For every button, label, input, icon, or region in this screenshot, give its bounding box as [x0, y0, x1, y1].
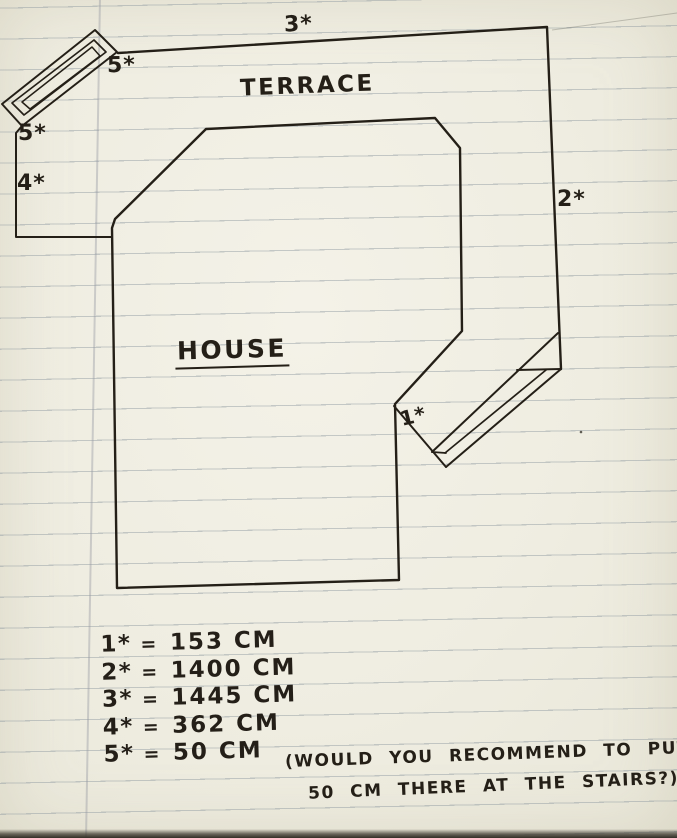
house-label: HOUSE	[175, 333, 290, 369]
legend-marker: 5*	[103, 741, 140, 768]
legend-equals: =	[142, 716, 160, 738]
marker-5-left: 5*	[18, 121, 47, 146]
photo-edge-shadow	[0, 829, 677, 838]
legend-marker: 4*	[102, 713, 139, 740]
legend-marker: 3*	[102, 686, 139, 713]
legend-value: 362 CM	[172, 709, 280, 738]
legend-equals: =	[140, 633, 158, 655]
legend-marker: 1*	[100, 631, 137, 658]
marker-2: 2*	[557, 187, 586, 212]
marker-3: 3*	[284, 12, 314, 38]
legend-value: 1445 CM	[171, 681, 297, 711]
legend-equals: =	[141, 661, 159, 683]
marker-5-top: 5*	[107, 53, 136, 78]
notebook-page: TERRACE HOUSE 3* 5* 5* 4* 2* 1* 1* = 153…	[0, 0, 677, 838]
legend-row: 5* = 50 CM	[103, 736, 299, 769]
stairs-top-left	[2, 30, 117, 126]
measurement-legend: 1* = 153 CM 2* = 1400 CM 3* = 1445 CM 4*…	[100, 626, 299, 769]
legend-equals: =	[143, 743, 161, 765]
pen-dot	[580, 431, 583, 434]
legend-value: 50 CM	[173, 737, 263, 765]
marker-4: 4*	[17, 171, 46, 196]
legend-value: 1400 CM	[170, 654, 296, 684]
terrace-label: TERRACE	[240, 70, 376, 101]
legend-equals: =	[142, 688, 160, 710]
paper-crease	[552, 13, 677, 30]
legend-value: 153 CM	[170, 627, 278, 656]
stairs-right	[394, 333, 561, 467]
legend-marker: 2*	[101, 658, 138, 685]
